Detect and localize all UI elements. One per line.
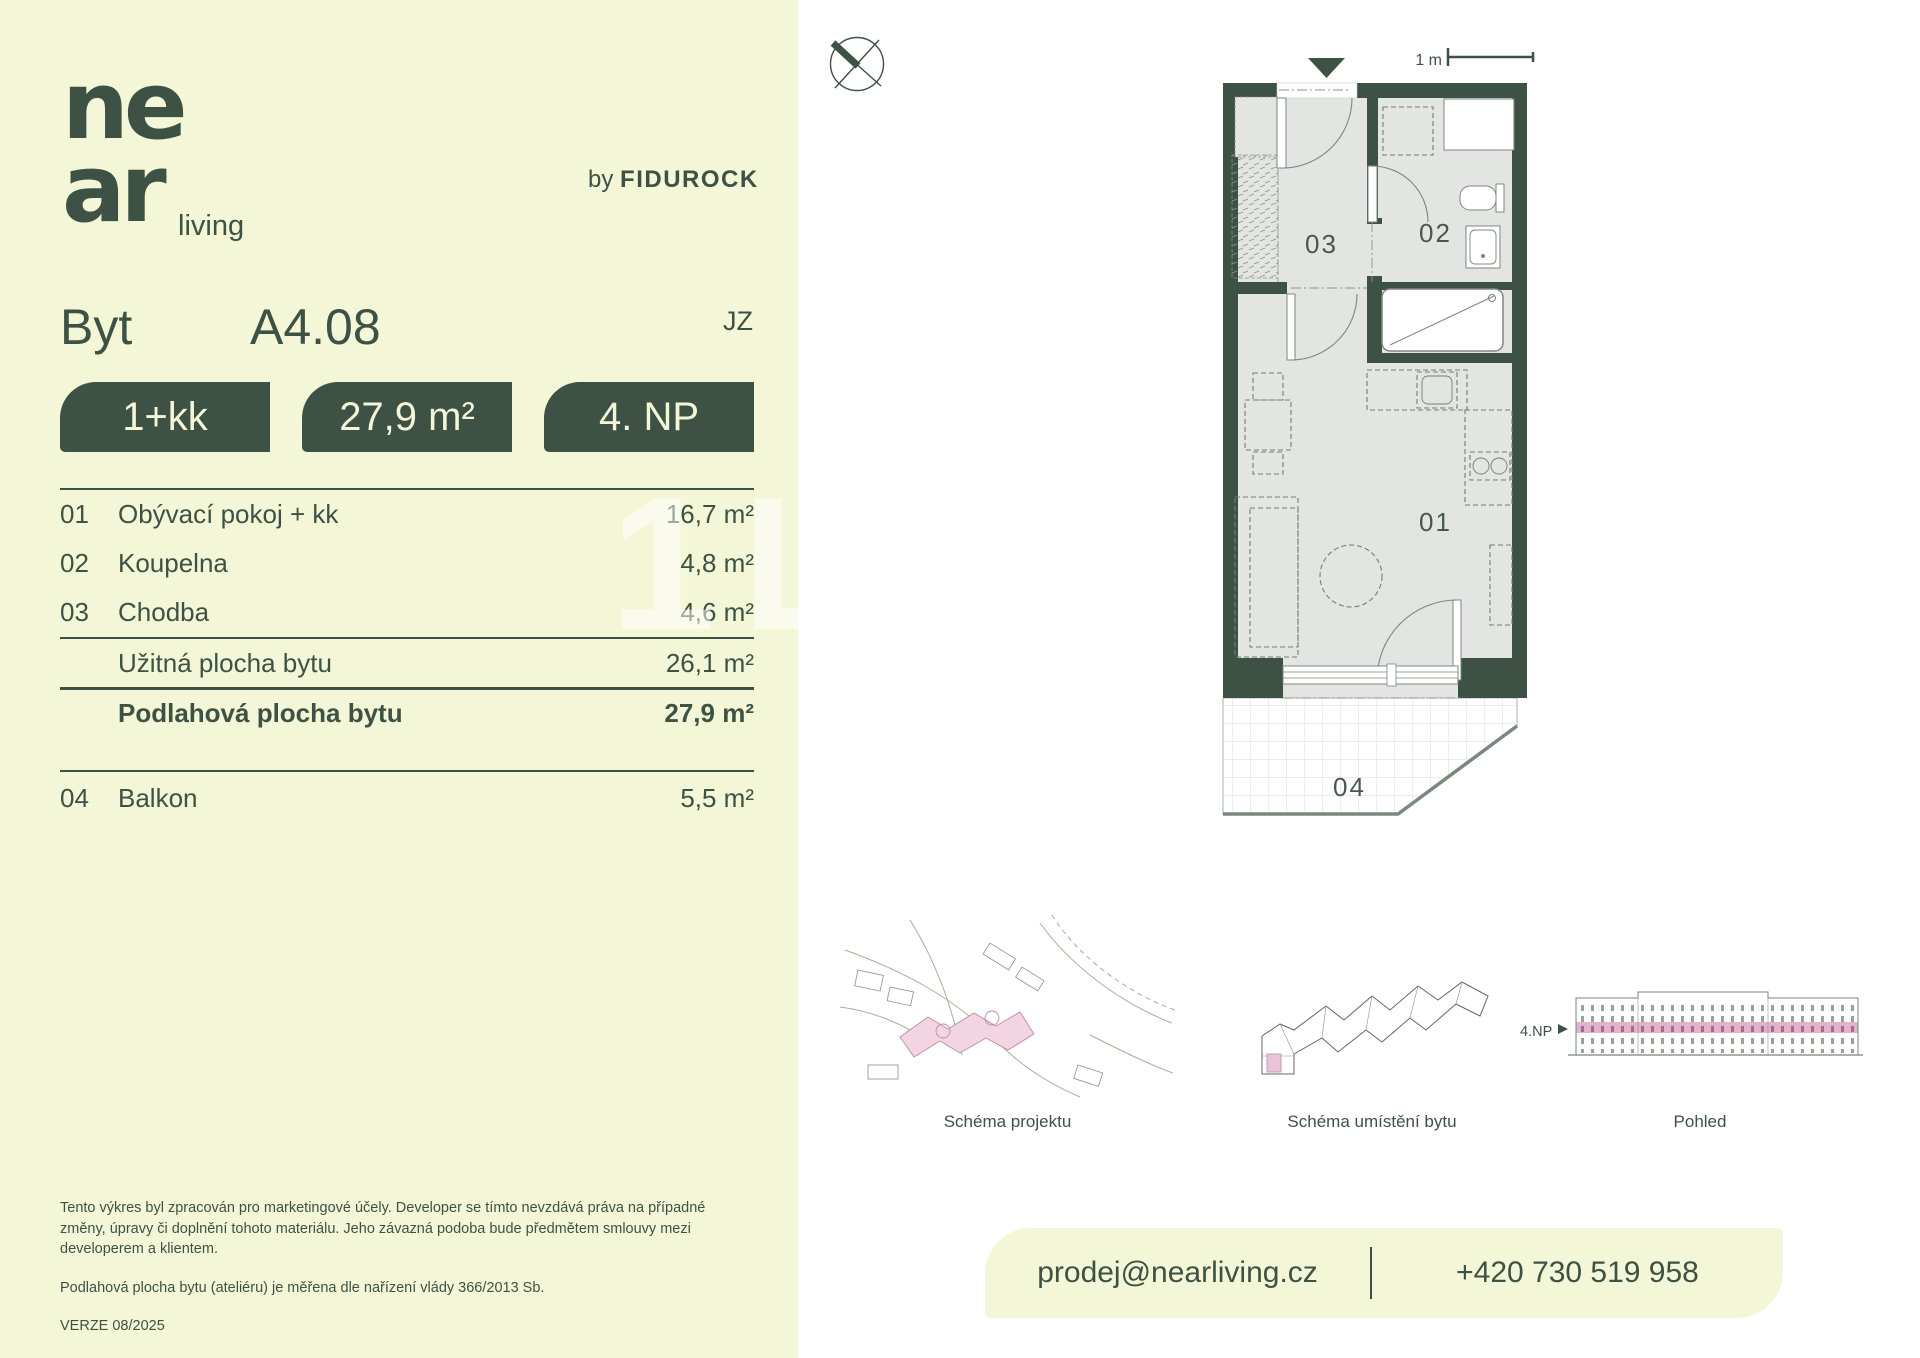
fidurock-wordmark: FIDUROCK	[620, 166, 759, 193]
project-site-scheme	[840, 915, 1175, 1105]
compass-icon	[819, 26, 895, 102]
scheme-unit-caption: Schéma umístění bytu	[1252, 1112, 1492, 1132]
area-table: 01 Obývací pokoj + kk 16,7 m² 02 Koupeln…	[60, 488, 754, 824]
room-area: 16,7 m²	[666, 499, 754, 530]
total-area-label: Podlahová plocha bytu	[118, 698, 664, 729]
wardrobe	[1232, 155, 1278, 278]
byline-prefix: by	[588, 166, 613, 193]
logo-living-label: living	[178, 210, 244, 243]
disclaimer-paragraph-1: Tento výkres byl zpracován pro marketing…	[60, 1198, 710, 1260]
table-row-room-03: 03 Chodba 4,6 m²	[60, 588, 754, 637]
unit-highlight	[1267, 1054, 1281, 1072]
unit-code: A4.08	[250, 298, 381, 356]
scale-bar: 1 m	[1415, 48, 1533, 69]
label-room-01: 01	[1419, 507, 1452, 537]
balcony-area	[1223, 698, 1517, 814]
table-row-total-area: Podlahová plocha bytu 27,9 m²	[60, 690, 754, 770]
contact-phone-link[interactable]: +420 730 519 958	[1372, 1256, 1783, 1290]
table-row-room-01: 01 Obývací pokoj + kk 16,7 m²	[60, 490, 754, 539]
badge-area: 27,9 m²	[302, 382, 512, 452]
room-area: 5,5 m²	[680, 783, 754, 814]
room-name: Koupelna	[118, 548, 680, 579]
contact-email-link[interactable]: prodej@nearliving.cz	[985, 1256, 1370, 1290]
elevation-scheme: 4.NP	[1518, 980, 1863, 1075]
room-number: 02	[60, 548, 118, 579]
unit-location-scheme	[1252, 966, 1492, 1096]
entrance-marker	[1308, 58, 1345, 78]
usable-area-value: 26,1 m²	[666, 648, 754, 679]
floor-tag-label: 4.NP	[1520, 1024, 1552, 1040]
room-name: Balkon	[118, 783, 680, 814]
scale-label: 1 m	[1415, 52, 1442, 69]
version-label: VERZE 08/2025	[60, 1316, 710, 1337]
label-room-04: 04	[1333, 772, 1366, 802]
hall-recess	[1235, 97, 1278, 157]
scheme-project-caption: Schéma projektu	[840, 1112, 1175, 1132]
table-row-room-02: 02 Koupelna 4,8 m²	[60, 539, 754, 588]
windows	[1283, 664, 1458, 686]
disclaimer-paragraph-2: Podlahová plocha bytu (ateliéru) je měře…	[60, 1278, 710, 1299]
room-area: 4,8 m²	[680, 548, 754, 579]
floor-pointer-icon	[1558, 1024, 1568, 1034]
room-number: 04	[60, 783, 118, 814]
contact-bar: prodej@nearliving.cz +420 730 519 958	[985, 1228, 1783, 1318]
room-number: 03	[60, 597, 118, 628]
table-row-balcony: 04 Balkon 5,5 m²	[60, 772, 754, 824]
orientation-label: JZ	[553, 306, 753, 337]
usable-area-label: Užitná plocha bytu	[118, 648, 666, 679]
disclaimer: Tento výkres byl zpracován pro marketing…	[60, 1198, 710, 1337]
room-number: 01	[60, 499, 118, 530]
total-area-value: 27,9 m²	[664, 698, 754, 729]
project-highlight	[900, 1012, 1034, 1057]
badge-floor: 4. NP	[544, 382, 754, 452]
badge-layout: 1+kk	[60, 382, 270, 452]
byline: by FIDUROCK	[588, 166, 759, 194]
room-name: Obývací pokoj + kk	[118, 499, 666, 530]
floor-plan: 03 02 01 04 1 m	[1215, 40, 1545, 830]
room-name: Chodba	[118, 597, 680, 628]
nearliving-logo: ne ar living	[62, 66, 382, 256]
apartment-sheet: ne ar living by FIDUROCK Byt A4.08 JZ 1+…	[0, 0, 1920, 1358]
unit-type-label: Byt	[60, 298, 132, 356]
label-room-03: 03	[1305, 229, 1338, 259]
info-panel: ne ar living by FIDUROCK Byt A4.08 JZ 1+…	[0, 0, 798, 1358]
label-room-02: 02	[1419, 218, 1452, 248]
scheme-view-caption: Pohled	[1580, 1112, 1820, 1132]
table-row-usable-area: Užitná plocha bytu 26,1 m²	[60, 639, 754, 687]
badge-row: 1+kk 27,9 m² 4. NP	[60, 382, 754, 452]
room-area: 4,6 m²	[680, 597, 754, 628]
toilet	[1460, 186, 1496, 210]
